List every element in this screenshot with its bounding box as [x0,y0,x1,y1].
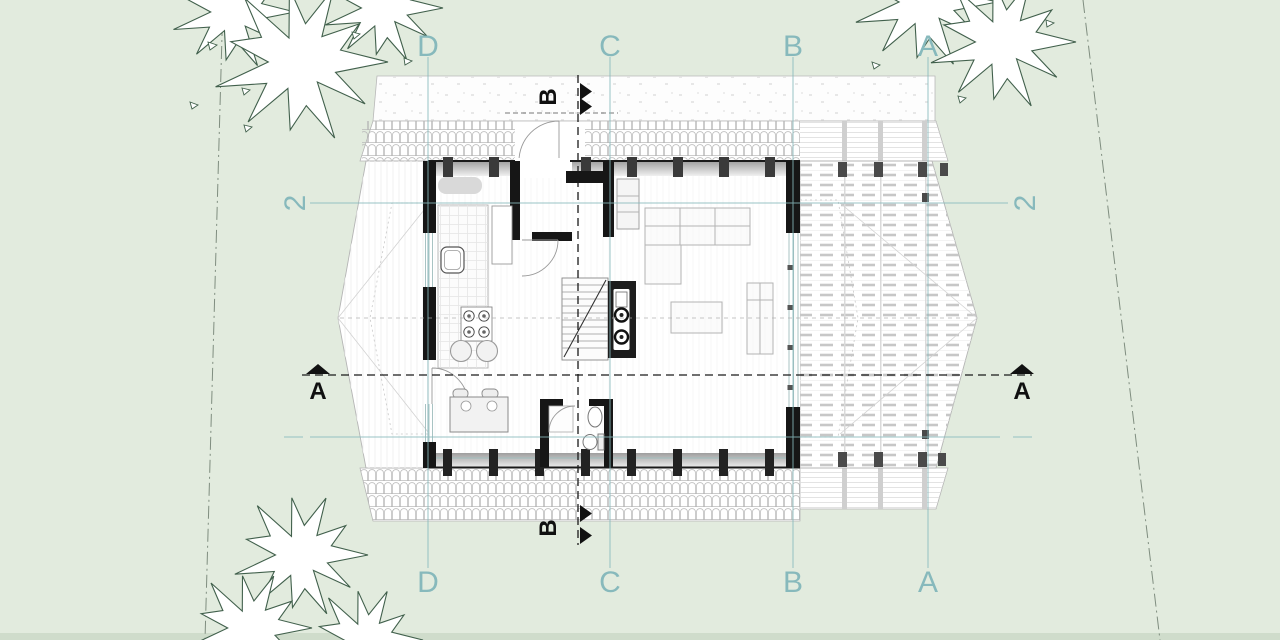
section-label-a-left: A [309,378,326,405]
building [336,76,980,521]
bathroom-sink-icon [588,407,602,427]
grid-label-d-bottom: D [417,566,439,599]
grid-label-d-top: D [417,30,439,63]
grid-label-2-left: 2 [279,195,312,212]
section-label-b-bottom: B [535,519,562,536]
grid-label-a-bottom: A [918,566,938,599]
floor-plan-page: D C B A D C B A 2 2 A A B B [0,0,1280,640]
grid-label-c-top: C [599,30,621,63]
section-label-a-right: A [1013,378,1030,405]
grid-label-b-bottom: B [783,566,803,599]
grid-label-c-bottom: C [599,566,621,599]
roof-tiles-top-left [362,121,515,161]
roof-ridge-texture [373,76,935,121]
deck-roof-band-top [800,121,948,161]
deck-roof-band-bottom-texture [800,468,948,509]
dining-table [450,397,508,432]
bottom-sill-band [428,453,800,468]
grid-label-2-right: 2 [1009,195,1042,212]
kitchen-bench [438,177,482,194]
staircase [562,278,608,360]
side-desk [747,283,773,354]
section-label-b-top: B [535,88,562,105]
floor-plan-drawing: D C B A D C B A 2 2 A A B B [0,0,1280,640]
stool-icon [477,341,498,362]
stove-island [608,281,636,358]
kitchen-cabinet [492,206,512,264]
closet [617,179,639,229]
roof-tiles-top-right [585,121,800,161]
grid-label-a-top: A [918,30,938,63]
cooktop-icon [461,307,492,341]
grid-label-b-top: B [783,30,803,63]
stool-icon [451,341,472,362]
ground-strip [0,633,1280,640]
coffee-table [671,302,722,333]
entry-opening [514,158,572,178]
toilet-icon [583,434,604,450]
